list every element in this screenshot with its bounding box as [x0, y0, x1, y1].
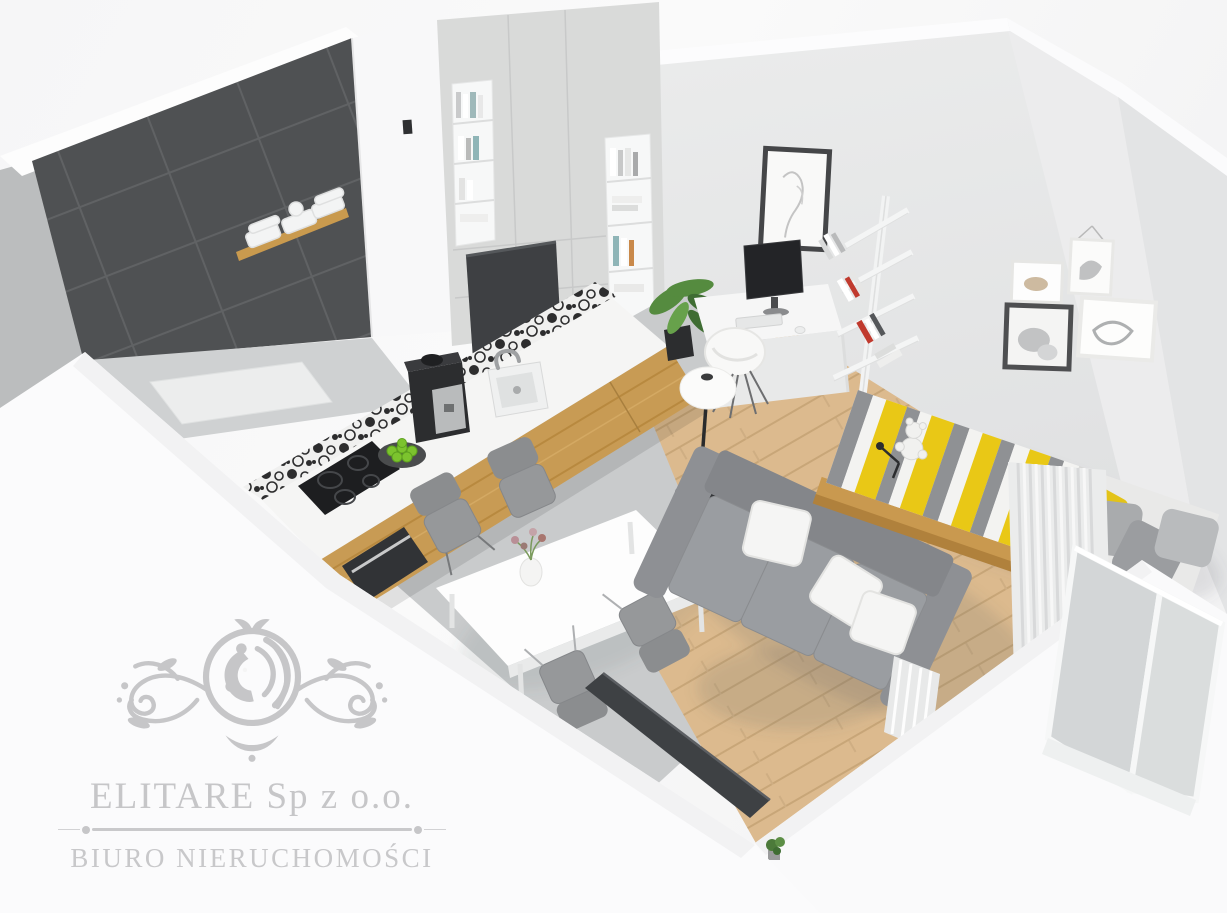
book-niche — [605, 134, 654, 321]
watermark-tagline: BIURO NIERUCHOMOŚCI — [56, 843, 448, 874]
watermark-divider — [58, 826, 446, 834]
framed-sketch — [761, 148, 830, 249]
watermark-company-name: ELITARE Sp z o.o. — [56, 778, 448, 817]
mouse — [795, 327, 805, 334]
light-switch — [403, 120, 413, 135]
lion-crest-icon — [92, 608, 412, 776]
wide-frame — [1078, 297, 1156, 360]
dark-frame — [1005, 305, 1071, 369]
book-niche — [452, 80, 495, 246]
apartment-3d-render-screenshot: ELITARE Sp z o.o. BIURO NIERUCHOMOŚCI — [0, 0, 1227, 913]
watermark: ELITARE Sp z o.o. BIURO NIERUCHOMOŚCI — [56, 608, 448, 874]
small-frame — [1011, 261, 1062, 303]
